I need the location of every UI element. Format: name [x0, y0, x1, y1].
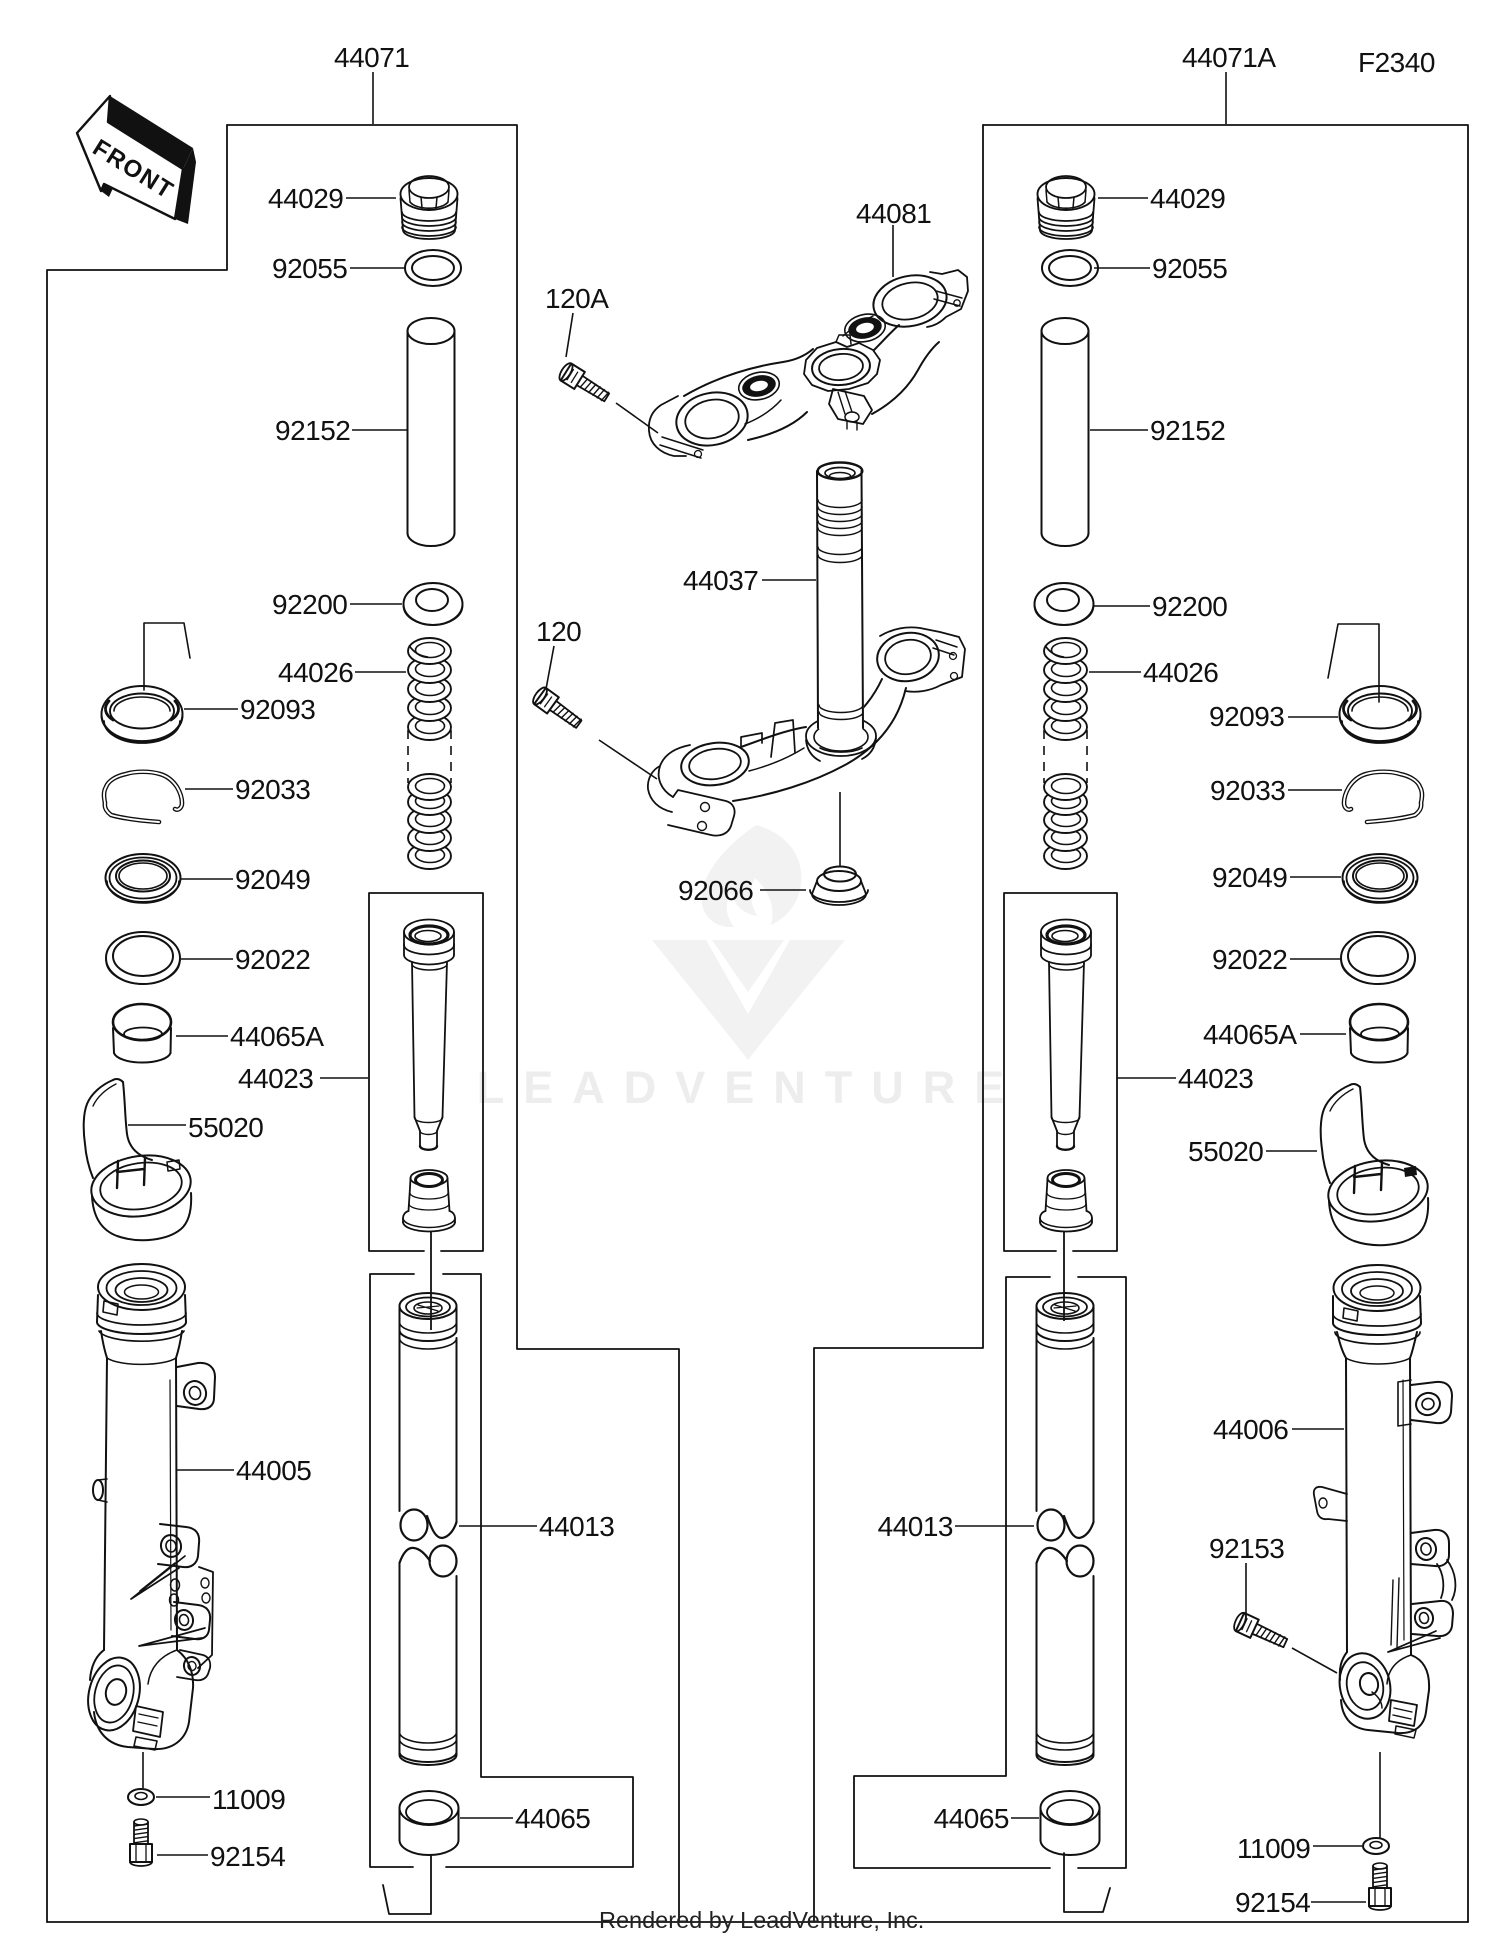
svg-text:44006: 44006 [1213, 1414, 1288, 1445]
svg-text:44029: 44029 [268, 183, 343, 214]
svg-text:44065A: 44065A [1203, 1019, 1297, 1050]
svg-text:11009: 11009 [1237, 1833, 1310, 1864]
svg-text:55020: 55020 [188, 1112, 263, 1143]
svg-text:92049: 92049 [1212, 862, 1287, 893]
svg-text:92022: 92022 [235, 944, 310, 975]
svg-text:44071: 44071 [334, 42, 409, 73]
svg-text:92093: 92093 [1209, 701, 1284, 732]
svg-text:92022: 92022 [1212, 944, 1287, 975]
svg-text:F2340: F2340 [1358, 47, 1435, 78]
svg-text:120: 120 [536, 616, 581, 647]
svg-text:44026: 44026 [278, 657, 353, 688]
svg-text:44023: 44023 [1178, 1063, 1253, 1094]
svg-text:92055: 92055 [272, 253, 347, 284]
svg-text:44071A: 44071A [1182, 42, 1276, 73]
svg-text:92049: 92049 [235, 864, 310, 895]
svg-text:92033: 92033 [235, 774, 310, 805]
svg-text:LEADVENTURE: LEADVENTURE [477, 1062, 1024, 1113]
svg-text:44081: 44081 [856, 198, 931, 229]
svg-text:92154: 92154 [1235, 1887, 1310, 1918]
svg-text:44065A: 44065A [230, 1021, 324, 1052]
svg-text:92152: 92152 [275, 415, 350, 446]
svg-text:44013: 44013 [878, 1511, 953, 1542]
svg-text:44005: 44005 [236, 1455, 311, 1486]
svg-text:55020: 55020 [1188, 1136, 1263, 1167]
svg-text:92033: 92033 [1210, 775, 1285, 806]
svg-text:11009: 11009 [212, 1784, 285, 1815]
svg-text:Rendered by LeadVenture, Inc.: Rendered by LeadVenture, Inc. [599, 1907, 924, 1933]
svg-text:44065: 44065 [515, 1803, 590, 1834]
svg-text:44023: 44023 [238, 1063, 313, 1094]
svg-text:44065: 44065 [934, 1803, 1009, 1834]
svg-text:92066: 92066 [678, 875, 753, 906]
svg-text:44026: 44026 [1143, 657, 1218, 688]
svg-text:44013: 44013 [539, 1511, 614, 1542]
svg-text:92093: 92093 [240, 694, 315, 725]
svg-text:120A: 120A [545, 283, 609, 314]
svg-text:44029: 44029 [1150, 183, 1225, 214]
svg-text:92154: 92154 [210, 1841, 285, 1872]
svg-text:92200: 92200 [272, 589, 347, 620]
svg-text:44037: 44037 [683, 565, 758, 596]
svg-text:92055: 92055 [1152, 253, 1227, 284]
svg-text:92153: 92153 [1209, 1533, 1284, 1564]
svg-text:92152: 92152 [1150, 415, 1225, 446]
svg-text:92200: 92200 [1152, 591, 1227, 622]
